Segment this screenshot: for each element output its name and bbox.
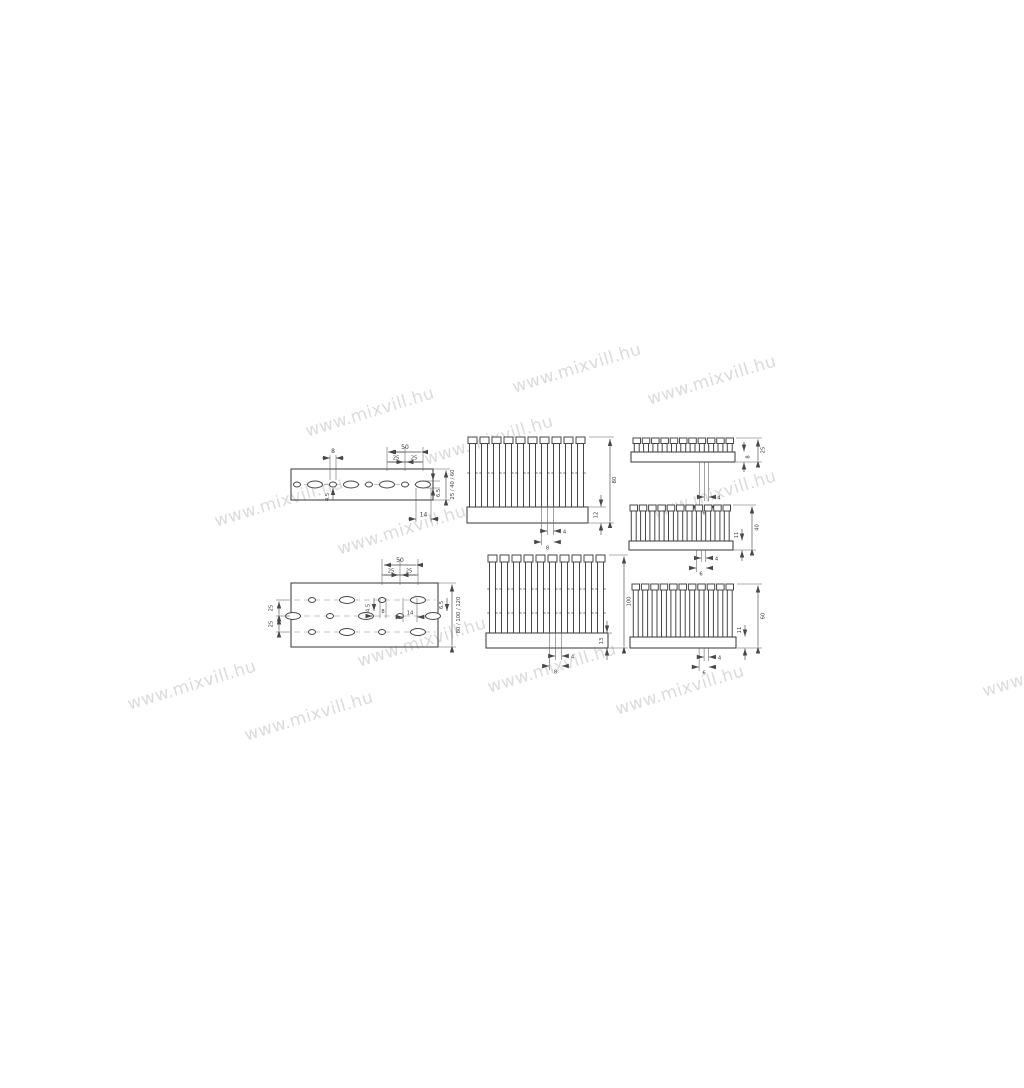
- dim-strip-duct-widths: 25 / 40 / 60: [450, 470, 456, 500]
- dim-comb100-height: 100: [627, 597, 633, 607]
- dim-comb80-height: 80: [612, 477, 618, 484]
- comb-duct-100-front-view: 100 13 4 8: [486, 555, 633, 676]
- dim-comb60-height: 60: [761, 613, 767, 620]
- dim-comb60-base: 11: [737, 627, 743, 634]
- dim-comb60-slot-width: 4: [718, 656, 722, 662]
- dim-strip-slot-height: 6.5: [436, 489, 442, 497]
- dim-plate-hole-spacing: 8: [381, 609, 384, 615]
- dim-comb25-height: 25: [761, 447, 767, 454]
- dim-plate-row-spacing-b: 25: [269, 621, 275, 628]
- dim-plate-duct-widths: 80 / 100 / 120: [456, 597, 462, 634]
- dim-plate-slot-height: 6.5: [439, 601, 445, 609]
- comb-duct-40-front-view: 40 11 4 6: [629, 505, 761, 578]
- dim-strip-pitch: 50: [401, 444, 409, 451]
- dim-comb40-slot-pitch: 6: [699, 572, 702, 578]
- dim-plate-hole-height: 4.5: [366, 604, 372, 612]
- dim-comb100-slot-width: 4: [571, 655, 575, 661]
- base-plate-side-view: 50 25 25 25 25 4.5 8 14: [269, 557, 463, 647]
- dim-comb40-height: 40: [755, 524, 761, 531]
- dim-strip-pitch-half-a: 25: [393, 456, 400, 462]
- comb-duct-60-front-view: 60 11 4 6: [630, 584, 767, 677]
- dim-comb80-slot-width: 4: [563, 530, 567, 536]
- technical-drawing-canvas: www.mixvill.hu www.mixvill.hu www.mixvil…: [0, 0, 1024, 1088]
- duct-dimension-drawing: 8 50 25 25 4.5 6.5: [0, 0, 1024, 1088]
- dim-comb100-slot-pitch: 8: [554, 670, 557, 676]
- dim-comb40-base: 11: [734, 532, 740, 539]
- base-strip-side-view: 8 50 25 25 4.5 6.5: [291, 444, 456, 522]
- dim-comb80-base: 12: [594, 512, 600, 519]
- comb-duct-80-front-view: 80 12 4 8: [467, 437, 618, 552]
- dim-strip-hole-height: 4.5: [325, 493, 331, 501]
- dim-comb40-slot-width: 4: [715, 557, 719, 563]
- dim-plate-pitch-half-a: 25: [388, 569, 395, 575]
- dim-plate-row-spacing-a: 25: [269, 605, 275, 612]
- dim-plate-pitch: 50: [396, 557, 404, 564]
- dim-comb60-slot-pitch: 6: [702, 671, 705, 677]
- dim-comb80-slot-pitch: 8: [546, 546, 549, 552]
- dim-comb25-slot-width: 4: [717, 496, 721, 502]
- dim-strip-pitch-half-b: 25: [411, 456, 418, 462]
- dim-strip-slot-length: 14: [420, 512, 428, 519]
- dim-comb25-base: 8: [746, 455, 752, 458]
- dim-comb100-base: 13: [599, 638, 605, 645]
- dim-strip-hole-width: 8: [331, 448, 335, 455]
- dim-plate-pitch-half-b: 25: [406, 569, 413, 575]
- dim-plate-slot-length: 14: [407, 611, 414, 617]
